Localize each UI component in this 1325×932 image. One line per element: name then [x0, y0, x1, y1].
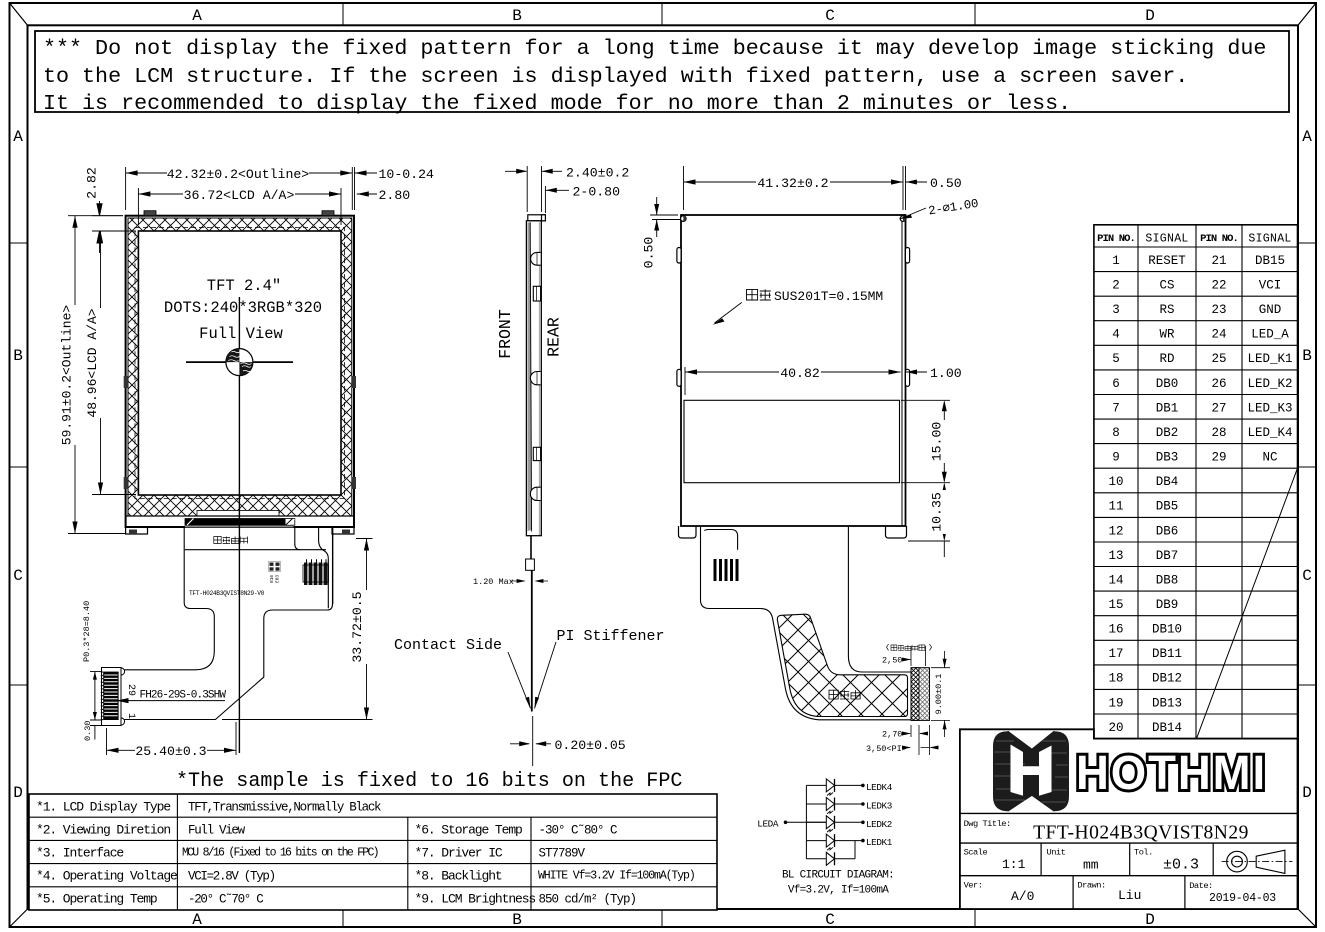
svg-text:*3. Interface: *3. Interface	[36, 846, 123, 861]
svg-text:*9. LCM Brightness: *9. LCM Brightness	[415, 892, 536, 907]
svg-text:*8. Backlight: *8. Backlight	[415, 869, 502, 884]
svg-text:C: C	[825, 7, 835, 25]
svg-text:816: 816	[269, 575, 275, 583]
svg-text:*7. Driver IC: *7. Driver IC	[415, 846, 503, 861]
svg-text:21: 21	[1211, 254, 1226, 268]
svg-text:B: B	[1302, 347, 1312, 365]
svg-text:A: A	[13, 128, 23, 146]
svg-text:RS: RS	[1159, 303, 1174, 317]
svg-text:mm: mm	[1083, 858, 1099, 873]
svg-text:22: 22	[1211, 279, 1226, 293]
svg-text:D: D	[1145, 7, 1155, 25]
svg-text:2,70: 2,70	[882, 730, 902, 740]
svg-text:Contact Side: Contact Side	[394, 637, 502, 654]
svg-text:E03: E03	[275, 575, 281, 583]
svg-text:0.30: 0.30	[83, 721, 93, 741]
svg-text:41.32±0.2: 41.32±0.2	[757, 176, 828, 191]
svg-text:24: 24	[1211, 328, 1226, 342]
svg-text:20: 20	[1108, 721, 1123, 735]
svg-text:LED_K4: LED_K4	[1247, 426, 1292, 440]
svg-text:9: 9	[1112, 451, 1120, 465]
svg-text:MCU 8/16 (Fixed to 16 bits on: MCU 8/16 (Fixed to 16 bits on the FPC)	[182, 847, 378, 860]
svg-text:1: 1	[1112, 254, 1120, 268]
svg-text:6: 6	[1112, 377, 1120, 391]
svg-text:Full View: Full View	[199, 325, 283, 343]
svg-text:A: A	[192, 911, 202, 929]
svg-text:DB9: DB9	[1156, 598, 1179, 612]
svg-text:3,50<PI>: 3,50<PI>	[866, 744, 907, 754]
svg-text:2.80: 2.80	[379, 188, 411, 203]
svg-text:NC: NC	[1262, 451, 1277, 465]
svg-text:2-0.80: 2-0.80	[573, 184, 621, 199]
svg-text:11: 11	[1108, 500, 1123, 514]
svg-text:VCI: VCI	[1259, 279, 1282, 293]
svg-text:DB0: DB0	[1156, 377, 1179, 391]
svg-text:DB8: DB8	[1156, 573, 1179, 587]
svg-text:2,50: 2,50	[882, 656, 902, 666]
svg-text:D: D	[1145, 911, 1155, 929]
svg-text:2: 2	[1112, 279, 1120, 293]
svg-text:18: 18	[1108, 672, 1123, 686]
svg-text:DB11: DB11	[1152, 647, 1182, 661]
svg-text:15: 15	[1108, 598, 1123, 612]
svg-text:13: 13	[1108, 549, 1123, 563]
svg-text:D: D	[1302, 784, 1312, 802]
svg-text:Unit: Unit	[1047, 848, 1066, 858]
svg-text:5: 5	[1112, 352, 1120, 366]
svg-text:1: 1	[125, 713, 136, 719]
svg-text:9.00±0.1: 9.00±0.1	[934, 674, 944, 715]
svg-text:27: 27	[1211, 401, 1226, 415]
svg-text:1.20 Max: 1.20 Max	[473, 577, 514, 587]
svg-text:36.72<LCD A/A>: 36.72<LCD A/A>	[184, 188, 295, 203]
svg-text:DB12: DB12	[1152, 672, 1182, 686]
svg-text:DB3: DB3	[1156, 451, 1179, 465]
svg-text:*6. Storage Temp: *6. Storage Temp	[415, 823, 523, 838]
svg-text:2.82: 2.82	[85, 167, 100, 199]
svg-text:TFT 2.4″: TFT 2.4″	[207, 277, 281, 295]
svg-text:SIGNAL: SIGNAL	[1145, 233, 1188, 246]
svg-text:B: B	[512, 911, 522, 929]
svg-text:16: 16	[1108, 623, 1123, 637]
svg-text:DOTS:240*3RGB*320: DOTS:240*3RGB*320	[164, 299, 322, 317]
svg-text:LEDK2: LEDK2	[866, 819, 892, 830]
svg-text:Dwg Title:: Dwg Title:	[964, 819, 1011, 829]
svg-text:DB5: DB5	[1156, 500, 1179, 514]
svg-text:4: 4	[1112, 328, 1120, 342]
svg-text:LEDA: LEDA	[757, 819, 779, 830]
svg-text:PIN NO.: PIN NO.	[1200, 233, 1238, 245]
svg-text:28: 28	[1211, 426, 1226, 440]
svg-text:*4. Operating Voltage: *4. Operating Voltage	[36, 869, 177, 884]
svg-text:10: 10	[1108, 475, 1123, 489]
svg-text:C: C	[13, 567, 23, 585]
svg-text:Full View: Full View	[188, 824, 246, 838]
svg-text:17: 17	[1108, 647, 1123, 661]
svg-text:FRONT: FRONT	[496, 309, 515, 359]
svg-text:C: C	[1302, 567, 1312, 585]
svg-text:LED_K1: LED_K1	[1247, 352, 1292, 366]
svg-text:-20° C˜70° C: -20° C˜70° C	[188, 893, 263, 907]
svg-text:59.91±0.2<Outline>: 59.91±0.2<Outline>	[60, 305, 75, 446]
svg-text:10-0.24: 10-0.24	[379, 167, 434, 182]
svg-text:-30° C˜80° C: -30° C˜80° C	[539, 824, 618, 838]
svg-text:LEDK4: LEDK4	[866, 782, 893, 793]
svg-text:It is recommended to display t: It is recommended to display the fixed m…	[43, 91, 1071, 116]
svg-text:P0.3*28=8.40: P0.3*28=8.40	[82, 601, 92, 662]
svg-text:A: A	[1302, 128, 1312, 146]
svg-text:VCI=2.8V (Typ): VCI=2.8V (Typ)	[188, 870, 275, 884]
svg-text:42.32±0.2<Outline>: 42.32±0.2<Outline>	[167, 167, 310, 182]
svg-text:A: A	[192, 7, 202, 25]
svg-text:HOTHMI: HOTHMI	[1076, 747, 1267, 800]
svg-text:*2. Viewing Diretion: *2. Viewing Diretion	[36, 823, 170, 838]
svg-text:C: C	[825, 911, 835, 929]
svg-text:B: B	[512, 7, 522, 25]
svg-text:14: 14	[1108, 573, 1123, 587]
svg-text:2.40±0.2: 2.40±0.2	[566, 165, 629, 180]
svg-text:RESET: RESET	[1148, 254, 1186, 268]
svg-text:TFT-H024B3QVIST8N29: TFT-H024B3QVIST8N29	[1033, 823, 1249, 844]
svg-text:0.50: 0.50	[930, 176, 962, 191]
svg-text:Vf=3.2V, If=100mA: Vf=3.2V, If=100mA	[788, 885, 889, 897]
svg-text:LED_K2: LED_K2	[1247, 377, 1292, 391]
svg-text:48.96<LCD A/A>: 48.96<LCD A/A>	[85, 308, 100, 417]
svg-text:Ver:: Ver:	[964, 881, 983, 891]
svg-text:0.20±0.05: 0.20±0.05	[555, 738, 626, 753]
svg-text:PIN NO.: PIN NO.	[1097, 233, 1135, 245]
svg-text:PI Stiffener: PI Stiffener	[557, 628, 665, 645]
svg-text:*** Do not display the fixed p: *** Do not display the fixed pattern for…	[43, 36, 1266, 61]
svg-text:Scale: Scale	[964, 848, 988, 858]
svg-text:±0.3: ±0.3	[1163, 857, 1199, 874]
svg-text:Liu: Liu	[1118, 888, 1141, 903]
svg-text:DB15: DB15	[1255, 254, 1285, 268]
svg-text:TFT,Transmissive,Normally Blac: TFT,Transmissive,Normally Black	[188, 801, 381, 815]
svg-text:1.00: 1.00	[930, 366, 962, 381]
svg-text:LED_K3: LED_K3	[1247, 401, 1292, 415]
svg-text:*5. Operating Temp: *5. Operating Temp	[36, 892, 157, 907]
svg-text:12: 12	[1108, 524, 1123, 538]
svg-text:A/0: A/0	[1011, 889, 1034, 904]
svg-text:DB10: DB10	[1152, 623, 1182, 637]
svg-text:D: D	[13, 784, 23, 802]
svg-text:BL CIRCUIT DIAGRAM:: BL CIRCUIT DIAGRAM:	[782, 870, 894, 882]
svg-text:B: B	[13, 347, 23, 365]
svg-text:DB1: DB1	[1156, 401, 1179, 415]
svg-text:WHITE Vf=3.2V If=100mA(Typ): WHITE Vf=3.2V If=100mA(Typ)	[538, 870, 695, 883]
svg-text:WR: WR	[1159, 328, 1175, 342]
svg-text:LEDK1: LEDK1	[866, 837, 893, 848]
svg-text:CS: CS	[1159, 279, 1174, 293]
svg-text:*1. LCD Display Type: *1. LCD Display Type	[36, 800, 170, 815]
svg-text:Tol.: Tol.	[1134, 848, 1153, 858]
svg-text:LEDK3: LEDK3	[866, 801, 892, 812]
svg-text:*The sample is fixed to 16 bit: *The sample is fixed to 16 bits on the F…	[176, 770, 682, 793]
svg-text:10.35: 10.35	[930, 492, 945, 532]
svg-text:8: 8	[1112, 426, 1120, 440]
svg-text:REAR: REAR	[544, 317, 563, 357]
svg-text:to the LCM structure. If the: to the LCM structure. If the screen is d…	[43, 64, 1188, 89]
svg-text:33.72±0.5: 33.72±0.5	[350, 591, 365, 662]
svg-text:DB13: DB13	[1152, 696, 1182, 710]
svg-text:0.50: 0.50	[642, 237, 657, 269]
svg-text:1:1: 1:1	[1002, 857, 1026, 872]
svg-text:ST7789V: ST7789V	[539, 847, 586, 861]
svg-text:19: 19	[1108, 696, 1123, 710]
svg-text:15.00: 15.00	[930, 422, 945, 462]
svg-text:3: 3	[1112, 303, 1120, 317]
svg-text:23: 23	[1211, 303, 1226, 317]
svg-text:40.82: 40.82	[780, 366, 820, 381]
svg-text:25.40±0.3: 25.40±0.3	[135, 744, 206, 759]
svg-text:DB4: DB4	[1156, 475, 1179, 489]
svg-text:Date:: Date:	[1189, 881, 1213, 891]
svg-text:29: 29	[125, 684, 136, 696]
svg-text:DB2: DB2	[1156, 426, 1179, 440]
svg-text:RD: RD	[1159, 352, 1174, 366]
svg-text:FH26-29S-0.3SHW: FH26-29S-0.3SHW	[140, 690, 227, 702]
svg-text:DB6: DB6	[1156, 524, 1179, 538]
svg-text:SUS201T=0.15MM: SUS201T=0.15MM	[774, 289, 883, 304]
svg-text:GND: GND	[1259, 303, 1282, 317]
svg-text:2019-04-03: 2019-04-03	[1209, 892, 1276, 905]
svg-text:26: 26	[1211, 377, 1226, 391]
svg-text:LED_A: LED_A	[1251, 328, 1289, 342]
svg-text:TFT-H024B3QVIST8N29-V0: TFT-H024B3QVIST8N29-V0	[189, 590, 265, 597]
svg-text:DB14: DB14	[1152, 721, 1182, 735]
svg-text:DB7: DB7	[1156, 549, 1179, 563]
svg-text:Drawn:: Drawn:	[1077, 881, 1105, 891]
svg-text:25: 25	[1211, 352, 1226, 366]
svg-text:7: 7	[1112, 401, 1120, 415]
svg-text:SIGNAL: SIGNAL	[1248, 233, 1291, 246]
svg-text:850 cd/m² (Typ): 850 cd/m² (Typ)	[539, 893, 637, 907]
svg-text:29: 29	[1211, 451, 1226, 465]
